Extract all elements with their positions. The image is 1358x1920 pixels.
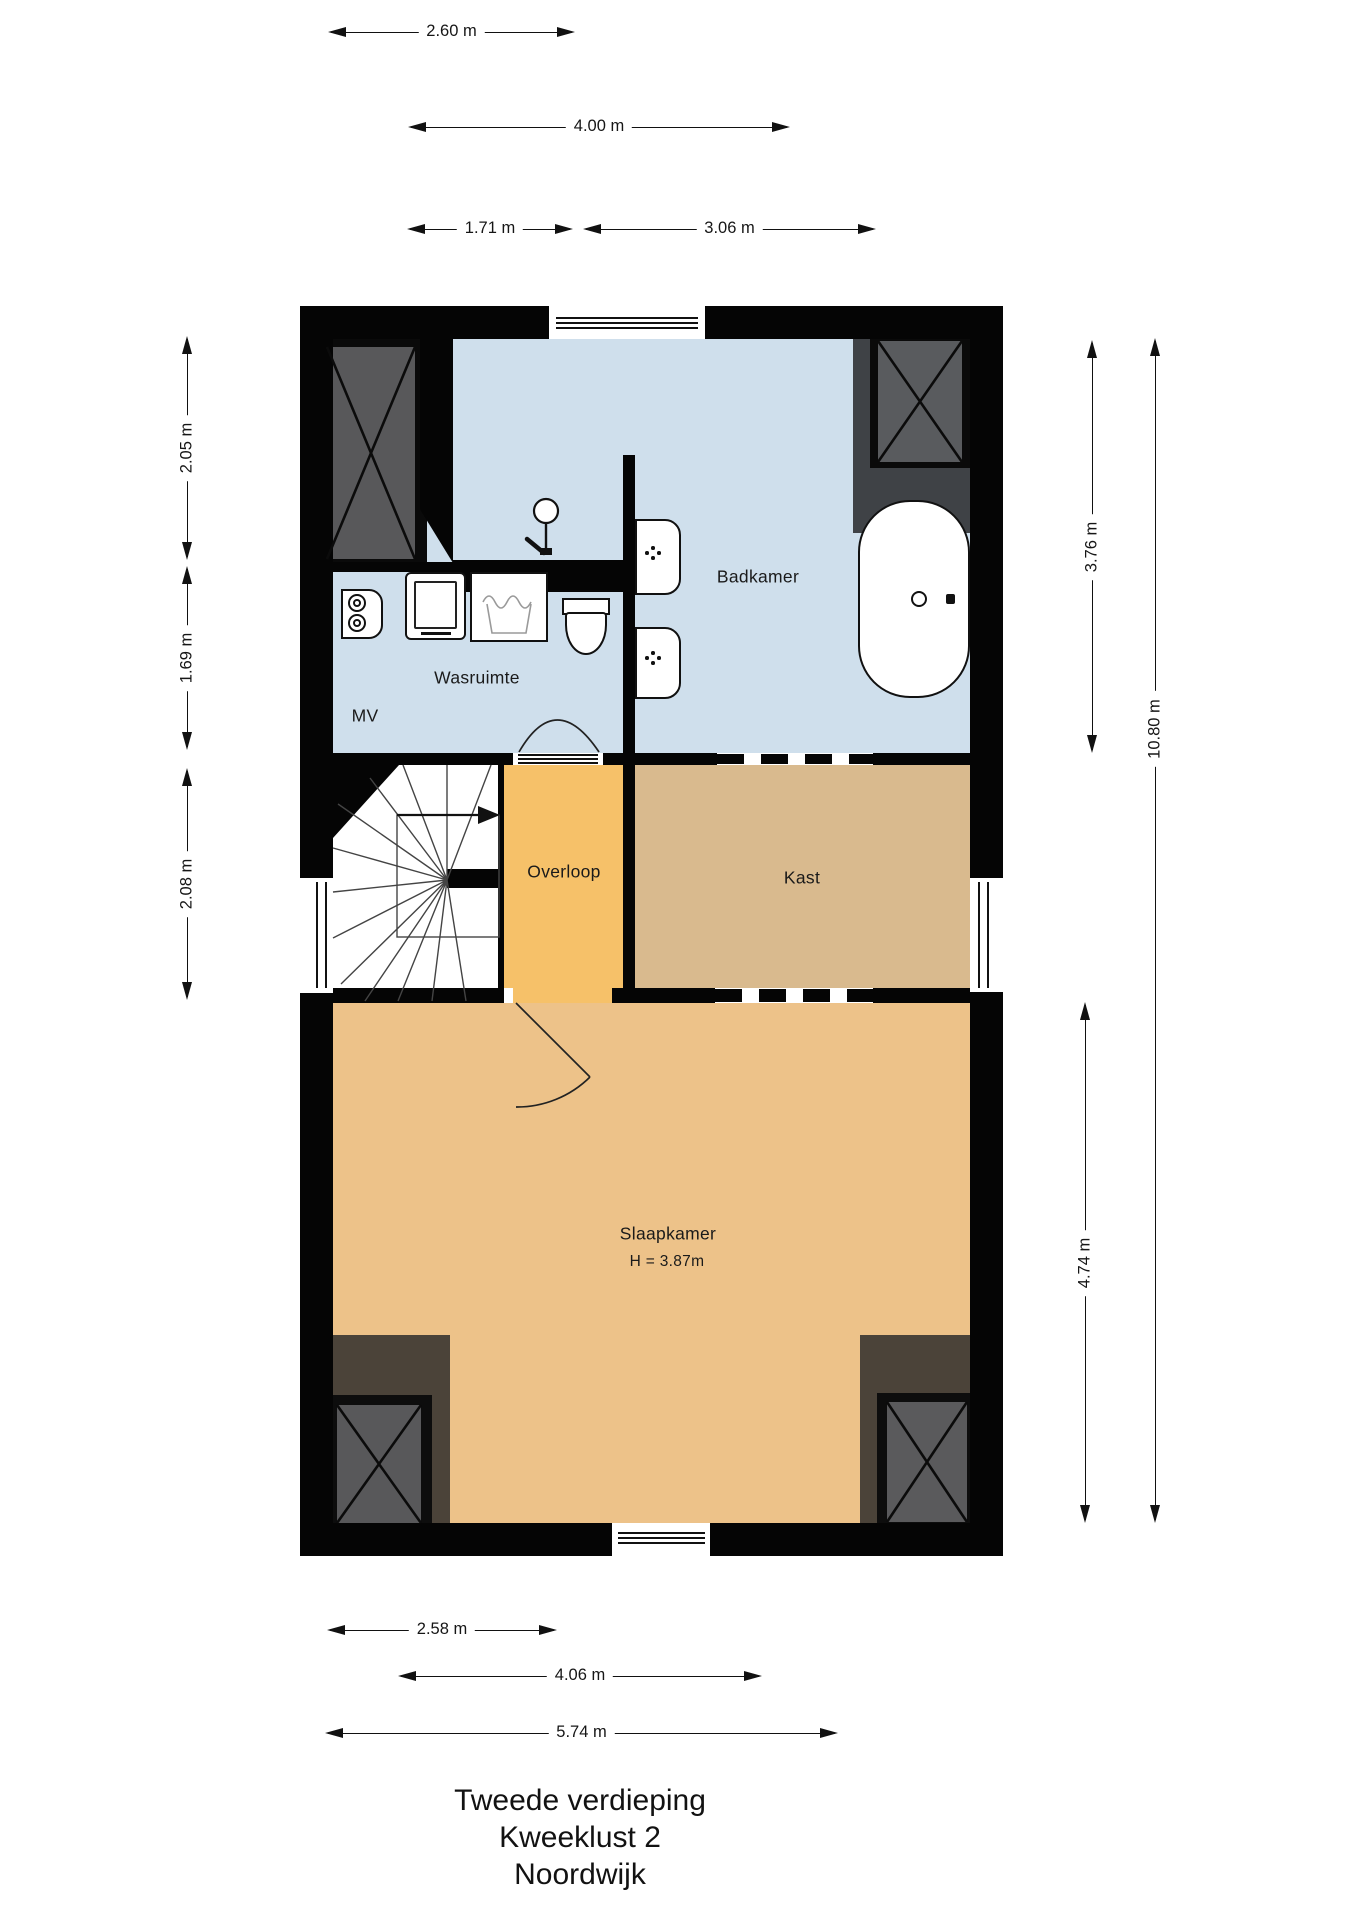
door-bedroom-jamb — [504, 988, 513, 1003]
arrow-down-icon — [1150, 1505, 1160, 1523]
wall-mid-b4 — [873, 988, 970, 1003]
arrow-left-icon — [328, 27, 346, 37]
room-label-kast: Kast — [784, 868, 820, 889]
boiler-ring-inner — [353, 599, 361, 607]
wall-left-lower — [300, 993, 333, 1556]
dim-top-171: 1.71 m — [407, 221, 573, 237]
door-washroom-rail — [518, 762, 598, 764]
dim-top-400: 4.00 m — [408, 119, 790, 135]
dim-label: 4.00 m — [566, 117, 632, 136]
dim-label: 4.06 m — [547, 1666, 613, 1685]
wall-right-upper — [970, 306, 1003, 878]
bathtub-drain — [911, 591, 927, 607]
laundry-sink — [470, 572, 548, 642]
sink-upper — [635, 519, 681, 595]
wall-bottom-left — [300, 1523, 612, 1556]
wall-washroom-thin — [325, 562, 453, 572]
dim-label: 1.69 m — [178, 625, 197, 691]
arrow-up-icon — [1080, 1002, 1090, 1020]
door-washroom-rail — [518, 754, 598, 756]
arrow-up-icon — [182, 336, 192, 354]
dim-label: 10.80 m — [1146, 691, 1165, 767]
dim-label: 4.74 m — [1076, 1229, 1095, 1295]
wall-mid-a4 — [873, 753, 970, 765]
dim-label: 2.60 m — [418, 22, 484, 41]
wall-left-upper — [300, 306, 333, 878]
wall-dashed-bottom — [715, 988, 873, 1003]
washing-machine — [405, 572, 466, 640]
dim-bottom-258: 2.58 m — [327, 1622, 557, 1638]
dim-left-205: 2.05 m — [179, 336, 195, 560]
plan-title-line-floor: Tweede verdieping — [330, 1782, 830, 1819]
wall-mid-a3 — [635, 753, 717, 765]
room-label-mv: MV — [352, 706, 379, 727]
arrow-up-icon — [1150, 338, 1160, 356]
arrow-left-icon — [407, 224, 425, 234]
arrow-right-icon — [539, 1625, 557, 1635]
landing-floor — [504, 765, 623, 1003]
faucet-dot — [657, 551, 661, 555]
arrow-right-icon — [744, 1671, 762, 1681]
room-label-slaapkamer: Slaapkamer — [620, 1224, 716, 1245]
room-label-wasruimte: Wasruimte — [434, 668, 520, 689]
dim-bottom-406: 4.06 m — [398, 1668, 762, 1684]
closet-topleft-x-box — [327, 347, 415, 559]
wall-mid-b3 — [635, 988, 715, 1003]
room-label-overloop: Overloop — [527, 862, 600, 883]
arrow-down-icon — [182, 542, 192, 560]
wall-mid-b2 — [612, 988, 635, 1003]
dim-top-306: 3.06 m — [583, 221, 876, 237]
faucet-dot — [657, 656, 661, 660]
wall-right-lower — [970, 992, 1003, 1556]
plan-title: Tweede verdieping Kweeklust 2 Noordwijk — [330, 1782, 830, 1893]
window-left-glazing — [325, 882, 327, 988]
arrow-right-icon — [557, 27, 575, 37]
window-bottom-glazing — [618, 1542, 705, 1544]
window-top-glazing — [556, 317, 698, 319]
wall-top-right — [705, 306, 1003, 339]
room-label-badkamer: Badkamer — [717, 567, 799, 588]
arrow-down-icon — [1080, 1505, 1090, 1523]
wall-mid-b1 — [333, 988, 504, 1003]
dim-label: 1.71 m — [457, 219, 523, 238]
bathtub-faucet — [946, 594, 955, 604]
dim-bottom-574: 5.74 m — [325, 1725, 838, 1741]
wall-top-left — [300, 306, 549, 339]
closet-bottomright-x-box — [887, 1402, 967, 1522]
wall-mid-a2 — [603, 753, 635, 765]
arrow-up-icon — [1087, 340, 1097, 358]
dim-line — [1155, 341, 1156, 1520]
dim-label: 2.08 m — [178, 851, 197, 917]
faucet-dot — [651, 651, 655, 655]
arrow-down-icon — [1087, 735, 1097, 753]
arrow-left-icon — [583, 224, 601, 234]
room-label-slaapkamer-height: H = 3.87m — [630, 1253, 705, 1271]
faucet-dot — [645, 551, 649, 555]
arrow-right-icon — [820, 1728, 838, 1738]
washing-machine-drum — [414, 581, 457, 629]
arrow-down-icon — [182, 982, 192, 1000]
window-right-glazing — [987, 882, 989, 988]
arrow-right-icon — [858, 224, 876, 234]
faucet-dot — [645, 656, 649, 660]
sink-lower — [635, 627, 681, 699]
dim-label: 3.76 m — [1083, 513, 1102, 579]
window-right-glazing — [978, 882, 980, 988]
dim-label: 3.06 m — [696, 219, 762, 238]
arrow-down-icon — [182, 732, 192, 750]
dim-left-208: 2.08 m — [179, 768, 195, 1000]
window-top-glazing — [556, 327, 698, 329]
arrow-right-icon — [555, 224, 573, 234]
arrow-left-icon — [327, 1625, 345, 1635]
arrow-left-icon — [398, 1671, 416, 1681]
faucet-dot — [651, 546, 655, 550]
dim-right-474: 4.74 m — [1077, 1002, 1093, 1523]
dim-right-376: 3.76 m — [1084, 340, 1100, 753]
window-top-glazing — [556, 322, 698, 324]
arrow-left-icon — [325, 1728, 343, 1738]
window-left-glazing — [316, 882, 318, 988]
arrow-right-icon — [772, 122, 790, 132]
dim-label: 2.05 m — [178, 415, 197, 481]
arrow-up-icon — [182, 768, 192, 786]
dim-top-260: 2.60 m — [328, 24, 575, 40]
wall-bottom-right — [710, 1523, 1003, 1556]
closet-topright-x-box — [878, 341, 962, 462]
plan-title-line-address: Kweeklust 2 — [330, 1819, 830, 1856]
dim-label: 2.58 m — [409, 1620, 475, 1639]
washing-machine-door-line — [421, 632, 451, 635]
window-bottom — [612, 1523, 710, 1556]
plan-title-line-city: Noordwijk — [330, 1856, 830, 1893]
arrow-up-icon — [182, 566, 192, 584]
door-washroom-rail — [518, 758, 598, 760]
faucet-dot — [651, 556, 655, 560]
window-bottom-glazing — [618, 1532, 705, 1534]
stair-core — [447, 869, 499, 888]
wall-dashed-top — [717, 753, 873, 765]
wall-mid-a1 — [333, 753, 513, 765]
arrow-left-icon — [408, 122, 426, 132]
dim-label: 5.74 m — [548, 1723, 614, 1742]
wall-bathroom-divider — [623, 455, 635, 1003]
dim-left-169: 1.69 m — [179, 566, 195, 750]
boiler — [341, 589, 383, 639]
closet-bottomleft-x-box — [337, 1405, 421, 1523]
boiler-ring-inner — [353, 619, 361, 627]
faucet-dot — [651, 661, 655, 665]
dim-right-1080: 10.80 m — [1147, 338, 1163, 1523]
window-bottom-glazing — [618, 1537, 705, 1539]
